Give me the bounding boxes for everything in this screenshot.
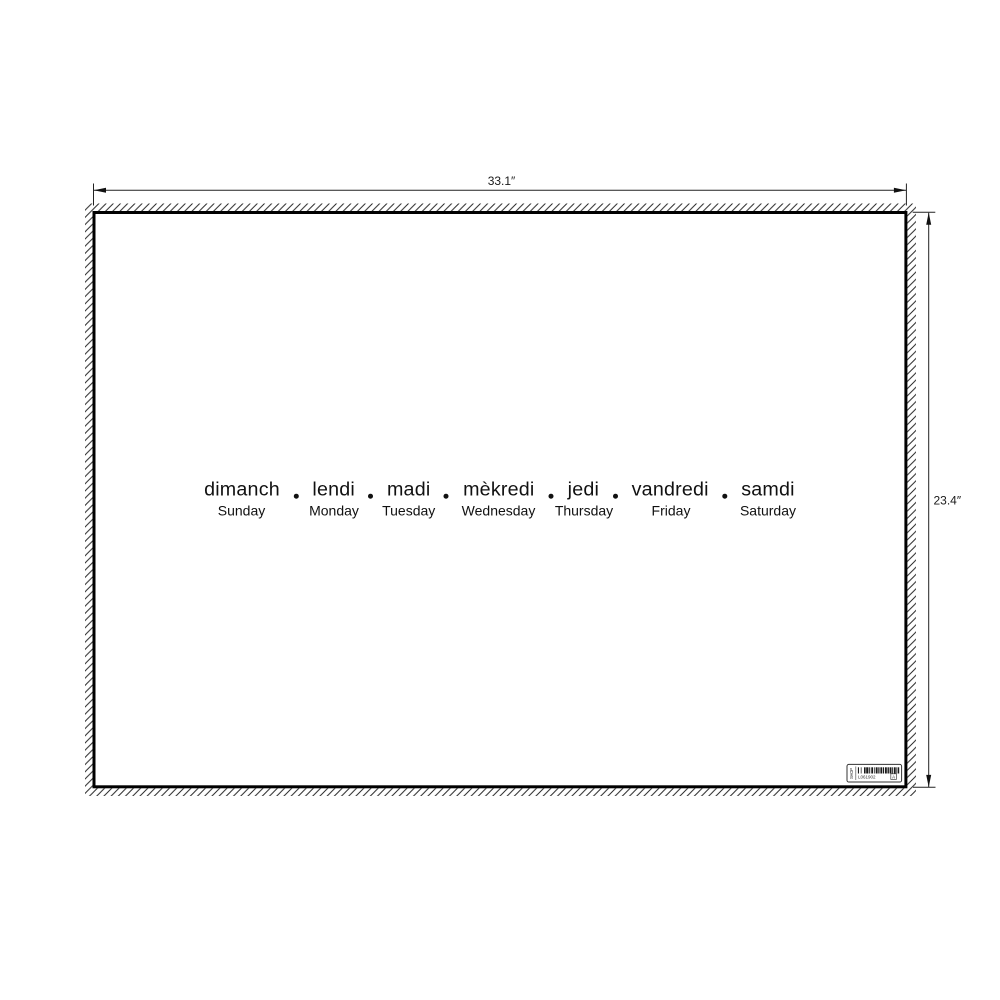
svg-text:33.1″: 33.1″ [488, 174, 516, 188]
svg-text:A: A [892, 774, 895, 779]
svg-text:jedi: jedi [567, 479, 599, 501]
svg-text:mèkredi: mèkredi [463, 479, 534, 501]
svg-text:dimanch: dimanch [204, 479, 280, 501]
svg-text:samdi: samdi [741, 479, 795, 501]
svg-text:L061902: L061902 [858, 775, 876, 780]
svg-text:Saturday: Saturday [740, 503, 796, 519]
svg-text:Tuesday: Tuesday [382, 503, 435, 519]
svg-text:Wednesday: Wednesday [462, 503, 536, 519]
svg-text:SHOP: SHOP [849, 768, 854, 779]
svg-text:madi: madi [387, 479, 430, 501]
svg-text:23.4″: 23.4″ [934, 494, 962, 508]
svg-text:Monday: Monday [309, 503, 359, 519]
svg-text:Sunday: Sunday [218, 503, 265, 519]
svg-text:lendi: lendi [312, 479, 355, 501]
svg-text:Thursday: Thursday [555, 503, 613, 519]
svg-text:Friday: Friday [652, 503, 691, 519]
svg-text:vandredi: vandredi [632, 479, 709, 501]
